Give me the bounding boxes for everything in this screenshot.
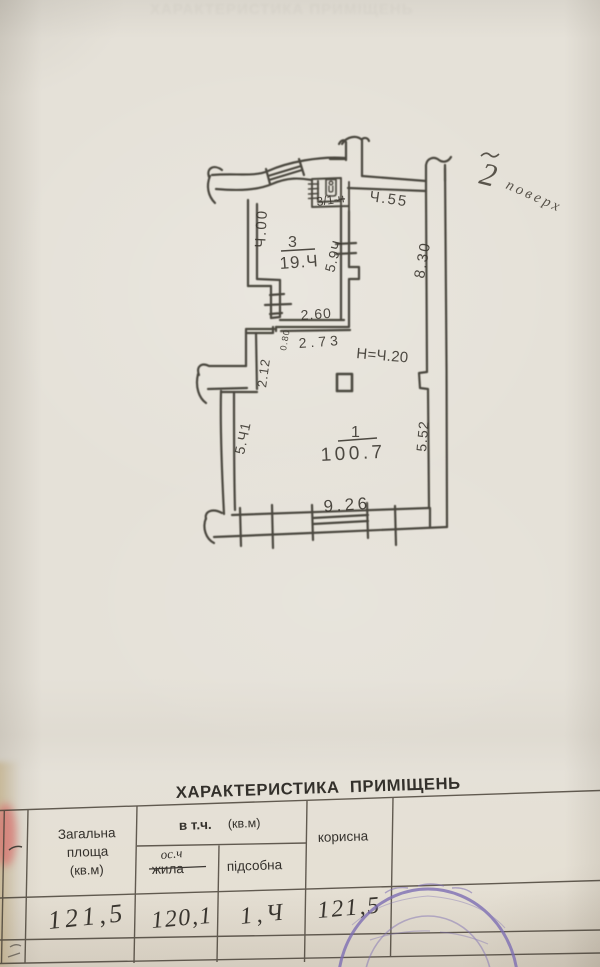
svg-text:Ч.00: Ч.00 [252,209,271,249]
svg-text:ХАРАКТЕРИСТИКА ПРИМІЩЕНЬ: ХАРАКТЕРИСТИКА ПРИМІЩЕНЬ [150,1,414,18]
svg-text:Ч.55: Ч.55 [368,188,409,210]
svg-text:ос.ч: ос.ч [160,845,183,862]
svg-text:підсобна: підсобна [227,857,283,874]
svg-text:2.60: 2.60 [300,305,332,323]
svg-text:19.Ч: 19.Ч [279,251,319,273]
svg-text:5.52: 5.52 [413,420,432,453]
svg-text:2.12: 2.12 [254,357,273,388]
svg-text:100.7: 100.7 [320,442,386,466]
svg-text:2.73: 2.73 [298,332,342,351]
svg-text:121,5: 121,5 [47,898,128,935]
svg-text:9.26: 9.26 [323,494,371,516]
svg-text:площа: площа [67,844,109,860]
svg-text:1,Ч: 1,Ч [239,899,288,930]
svg-text:2: 2 [476,155,500,194]
svg-text:Н=Ч.20: Н=Ч.20 [356,345,410,366]
svg-text:корисна: корисна [318,828,369,845]
svg-text:1: 1 [351,424,360,441]
svg-text:(кв.м): (кв.м) [228,816,261,831]
svg-text:ХАРАКТЕРИСТИКА ПРИМІЩЕНЬ: ХАРАКТЕРИСТИКА ПРИМІЩЕНЬ [176,775,461,802]
svg-text:поверх: поверх [503,177,564,216]
svg-text:3: 3 [288,234,297,251]
svg-text:в т.ч.: в т.ч. [179,817,212,833]
svg-text:(кв.м): (кв.м) [70,862,104,878]
svg-text:8.30: 8.30 [411,240,434,280]
svg-text:Загальна: Загальна [58,825,117,842]
svg-text:0.80: 0.80 [278,328,292,351]
svg-text:120,1: 120,1 [150,903,214,934]
